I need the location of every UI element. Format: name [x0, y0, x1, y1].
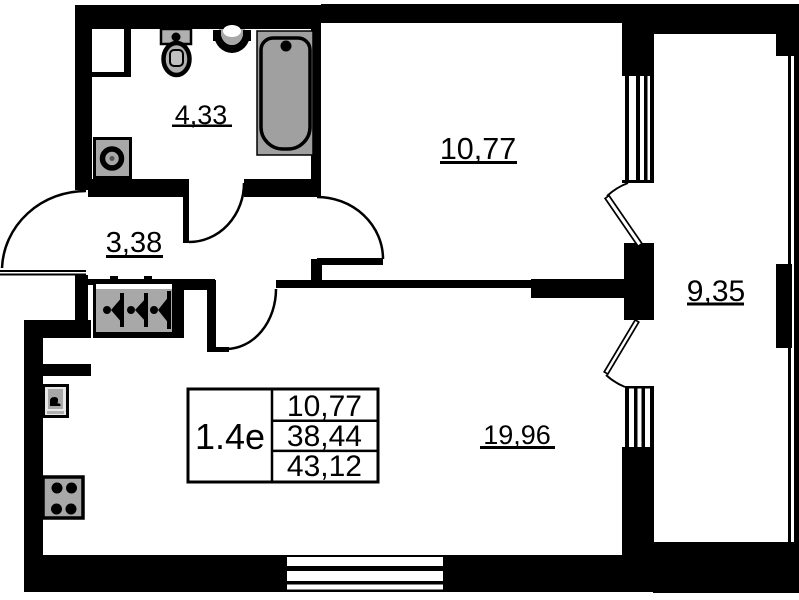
svg-text:1.4е: 1.4е — [195, 416, 265, 457]
svg-text:10,77: 10,77 — [440, 132, 516, 166]
svg-text:43,12: 43,12 — [287, 450, 362, 483]
svg-text:10,77: 10,77 — [287, 390, 362, 423]
svg-text:3,38: 3,38 — [106, 227, 162, 259]
svg-text:38,44: 38,44 — [287, 420, 362, 453]
svg-text:19,96: 19,96 — [483, 420, 551, 450]
